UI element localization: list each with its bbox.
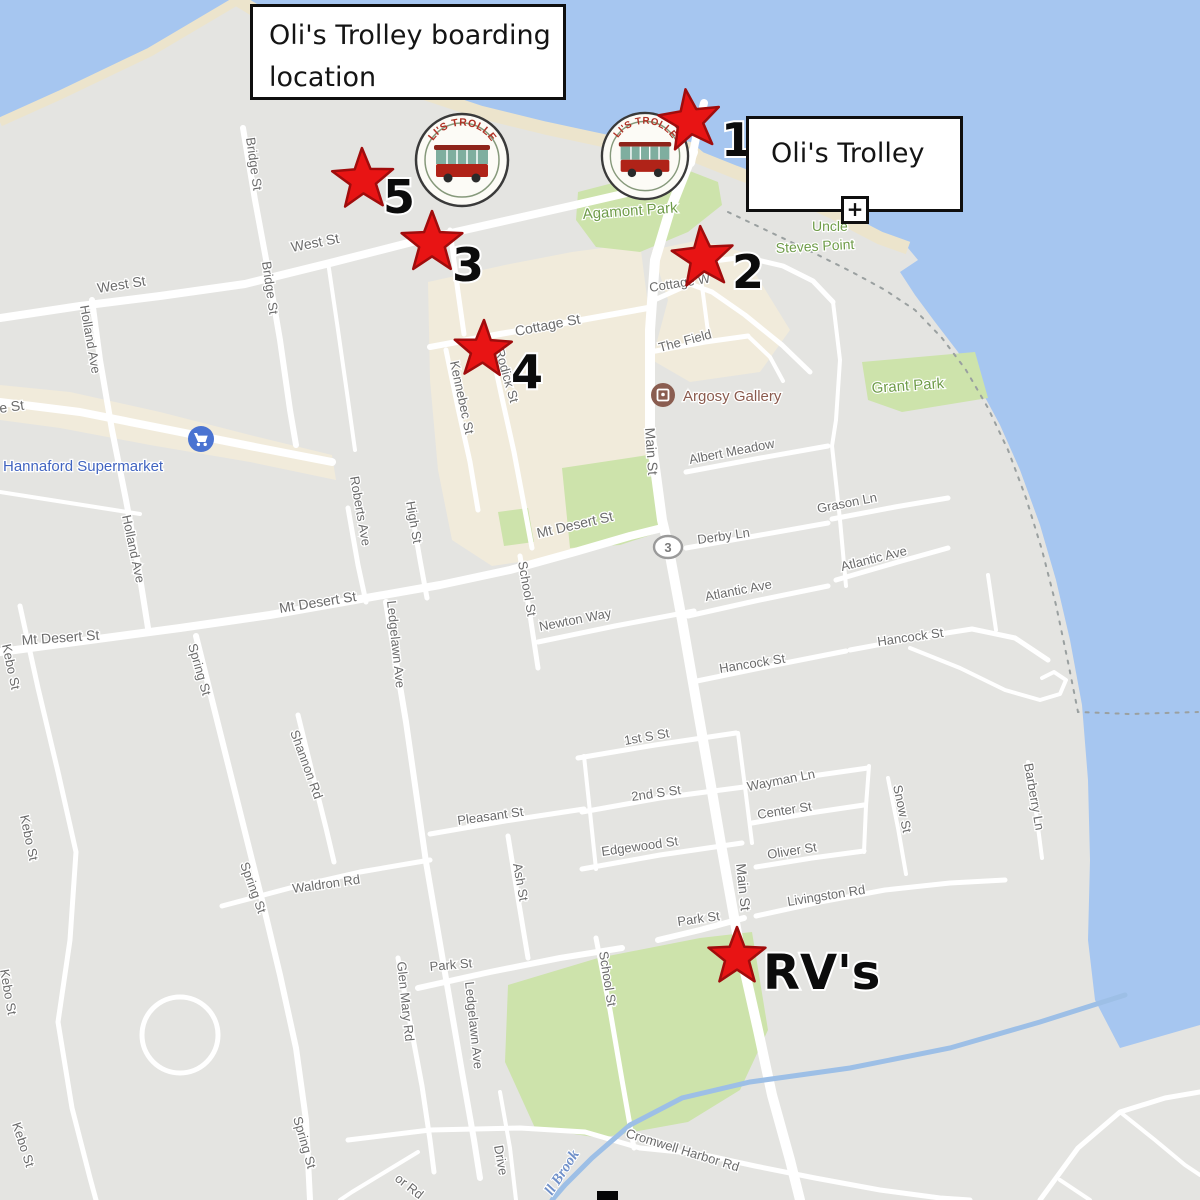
trolley-roof [434,145,490,150]
route-3-number: 3 [664,540,671,555]
trolley-callout-label: Oli's Trolley [771,133,960,175]
trolley-roof [619,142,671,147]
trolley-windows [436,150,488,164]
street-label: Main St [642,427,661,476]
trolley-wheel [654,169,662,177]
boarding-callout-line2: location [269,57,563,99]
map-canvas: West StWest StBridge StBridge StHolland … [0,0,1200,1200]
stop-number-3: 3 [452,238,484,292]
stop-number-4: 4 [511,345,543,399]
route-3-shield: 3 [654,536,682,558]
olis-trolley-logo: OLI'S TROLLEY [416,114,508,206]
trolley-wheel [472,174,481,183]
clipped-map-pin [597,1191,618,1200]
boarding-callout-line1: Oli's Trolley boarding [269,15,563,57]
expand-plus-button[interactable]: + [841,196,869,224]
poi-label: Hannaford Supermarket [3,458,164,475]
argosy-gallery-icon[interactable] [651,383,675,407]
hannaford-cart-icon[interactable] [188,426,214,452]
rv-label: RV's [763,945,880,1001]
map[interactable]: West StWest StBridge StBridge StHolland … [0,0,1200,1200]
poi-label: Argosy Gallery [683,388,782,405]
trolley-body [621,160,670,172]
trolley-wheel [628,169,636,177]
stop-number-5: 5 [383,170,415,224]
stop-number-2: 2 [732,245,764,299]
trolley-windows [621,147,670,160]
trolley-wheel [444,174,453,183]
boarding-location-callout: Oli's Trolley boarding location [250,4,566,100]
trolley-body [436,164,488,177]
